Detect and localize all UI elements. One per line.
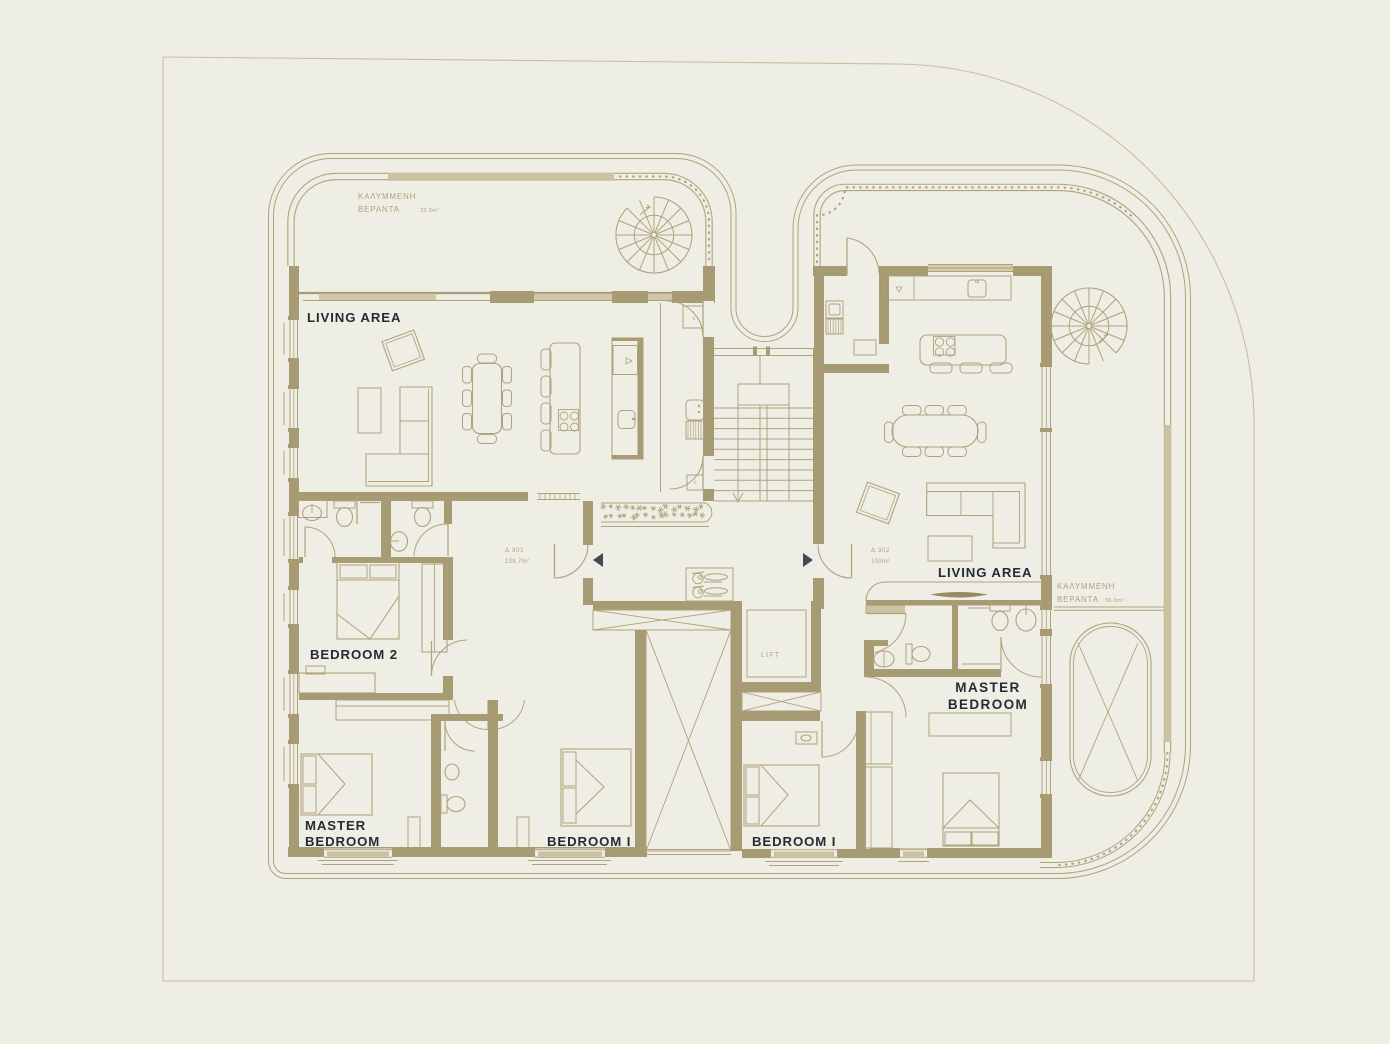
svg-text:ΚΑΛΥΜΜΕΝΗ: ΚΑΛΥΜΜΕΝΗ [1057, 582, 1115, 591]
svg-text:BEDROOM: BEDROOM [948, 697, 1028, 712]
svg-text:LIVING AREA: LIVING AREA [938, 565, 1032, 580]
svg-text:100m²: 100m² [871, 559, 890, 565]
svg-text:BEDROOM 2: BEDROOM 2 [310, 647, 398, 662]
svg-text:BEDROOM I: BEDROOM I [752, 834, 836, 849]
svg-text:c: c [694, 480, 697, 486]
svg-text:MASTER: MASTER [305, 818, 366, 833]
svg-text:ΒΕΡΑΝΤΑ: ΒΕΡΑΝΤΑ [358, 205, 400, 214]
svg-text:Δ 302: Δ 302 [871, 547, 890, 554]
svg-text:36.6m²: 36.6m² [1105, 598, 1124, 604]
svg-text:32.3m²: 32.3m² [420, 208, 439, 214]
svg-text:Δ 301: Δ 301 [505, 547, 524, 554]
svg-text:BEDROOM: BEDROOM [305, 834, 380, 849]
svg-text:LIVING AREA: LIVING AREA [307, 310, 401, 325]
svg-text:ΒΕΡΑΝΤΑ: ΒΕΡΑΝΤΑ [1057, 595, 1099, 604]
svg-text:BEDROOM I: BEDROOM I [547, 834, 631, 849]
svg-text:ΚΑΛΥΜΜΕΝΗ: ΚΑΛΥΜΜΕΝΗ [358, 192, 416, 201]
svg-text:MASTER: MASTER [955, 680, 1020, 695]
svg-text:c: c [693, 316, 696, 322]
svg-text:LIFT: LIFT [761, 652, 780, 659]
svg-text:138.7m²: 138.7m² [505, 559, 529, 565]
